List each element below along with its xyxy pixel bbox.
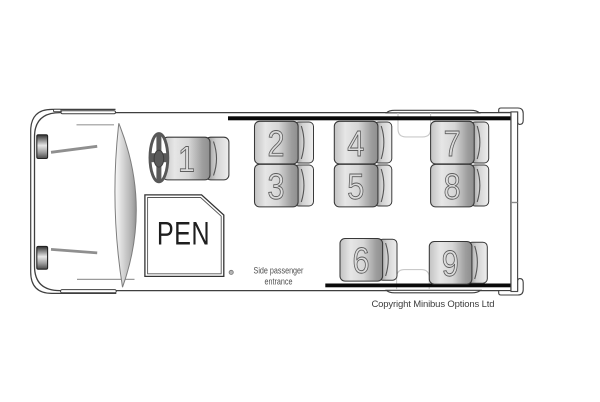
svg-text:6: 6: [352, 242, 369, 282]
svg-text:3: 3: [267, 168, 284, 208]
svg-text:4: 4: [347, 125, 364, 165]
svg-text:5: 5: [347, 168, 364, 208]
svg-text:2: 2: [267, 125, 284, 165]
svg-text:1: 1: [178, 140, 195, 180]
svg-text:8: 8: [444, 168, 461, 208]
svg-text:entrance: entrance: [265, 277, 293, 287]
svg-text:Copyright Minibus Options Ltd: Copyright Minibus Options Ltd: [371, 299, 494, 310]
svg-text:PEN: PEN: [157, 217, 210, 253]
svg-text:9: 9: [442, 245, 459, 285]
svg-text:7: 7: [444, 125, 461, 165]
svg-text:Side passenger: Side passenger: [254, 266, 304, 276]
